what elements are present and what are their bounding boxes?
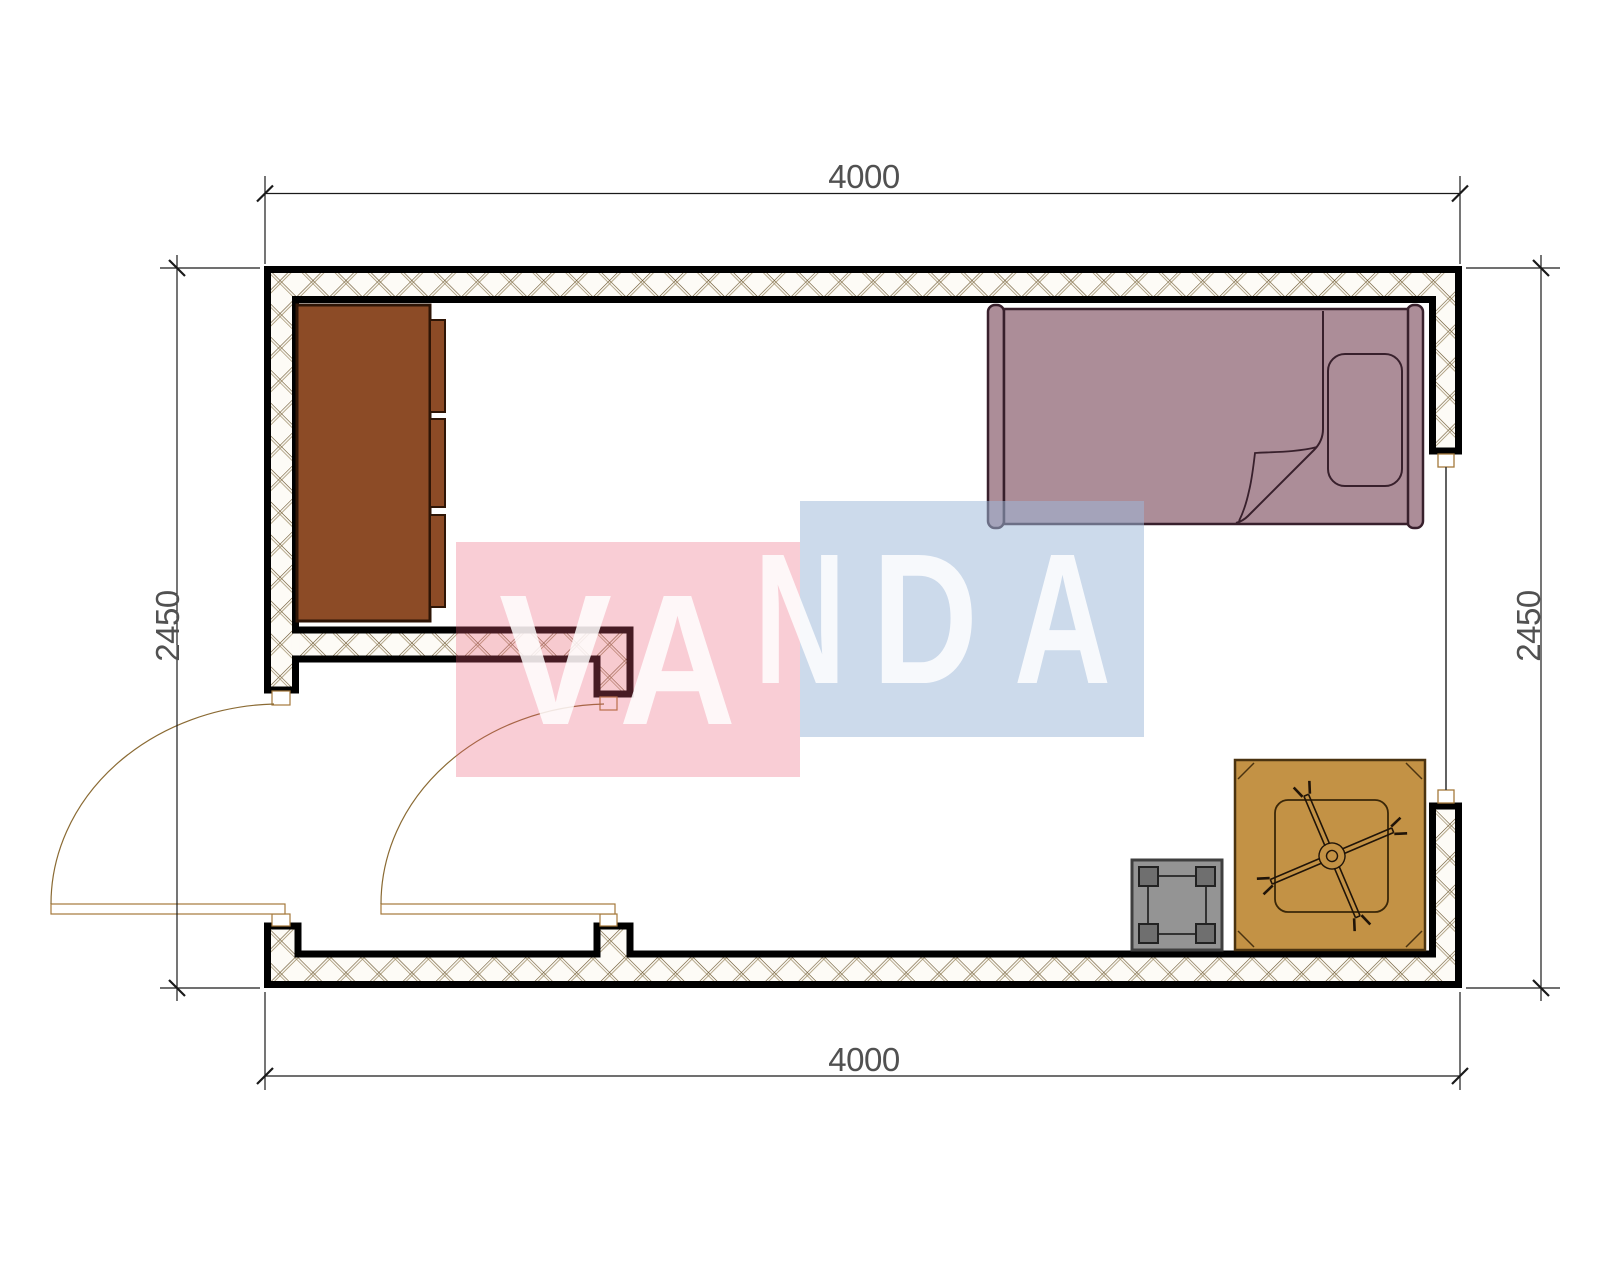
svg-text:A: A	[619, 557, 736, 764]
svg-text:N: N	[754, 516, 846, 723]
svg-text:D: D	[872, 516, 978, 723]
svg-text:4000: 4000	[828, 158, 900, 195]
svg-text:4000: 4000	[828, 1041, 900, 1078]
svg-text:A: A	[1014, 516, 1111, 723]
svg-text:2450: 2450	[1510, 590, 1547, 662]
svg-text:2450: 2450	[149, 590, 186, 662]
svg-text:V: V	[499, 557, 612, 764]
